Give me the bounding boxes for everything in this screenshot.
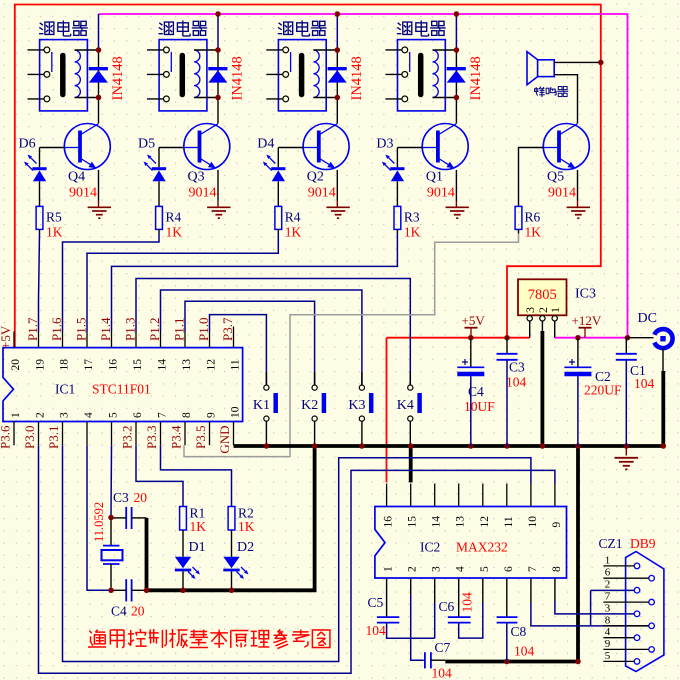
svg-text:9: 9 bbox=[605, 638, 611, 650]
svg-text:5: 5 bbox=[605, 650, 611, 662]
svg-text:K1: K1 bbox=[253, 398, 270, 413]
svg-text:P1.4: P1.4 bbox=[98, 317, 113, 341]
svg-text:P1.1: P1.1 bbox=[172, 318, 187, 341]
svg-text:9: 9 bbox=[551, 522, 563, 528]
svg-text:P3.5: P3.5 bbox=[193, 426, 208, 449]
svg-text:P1.2: P1.2 bbox=[147, 318, 162, 341]
svg-text:11: 11 bbox=[230, 359, 242, 370]
svg-text:K2: K2 bbox=[301, 398, 318, 413]
svg-text:IN4148: IN4148 bbox=[468, 56, 484, 100]
svg-text:8: 8 bbox=[551, 566, 563, 572]
svg-text:10: 10 bbox=[230, 406, 242, 418]
svg-text:13: 13 bbox=[181, 359, 193, 371]
svg-text:4: 4 bbox=[605, 626, 611, 638]
svg-text:P3.2: P3.2 bbox=[120, 426, 135, 449]
svg-text:7: 7 bbox=[157, 412, 169, 418]
svg-text:20: 20 bbox=[131, 604, 145, 619]
svg-text:104: 104 bbox=[634, 376, 655, 391]
svg-text:D1: D1 bbox=[189, 540, 206, 555]
svg-text:104: 104 bbox=[432, 666, 453, 680]
svg-text:P1.0: P1.0 bbox=[196, 318, 211, 341]
svg-text:8: 8 bbox=[181, 412, 193, 418]
svg-text:6: 6 bbox=[132, 412, 144, 418]
svg-text:D4: D4 bbox=[257, 137, 274, 152]
svg-text:7805: 7805 bbox=[528, 287, 557, 303]
svg-text:+5V: +5V bbox=[462, 313, 486, 328]
svg-text:9014: 9014 bbox=[189, 186, 217, 201]
svg-text:C4: C4 bbox=[468, 384, 484, 399]
svg-text:7: 7 bbox=[527, 566, 539, 572]
svg-text:5: 5 bbox=[479, 566, 491, 572]
svg-text:Q1: Q1 bbox=[426, 170, 443, 185]
svg-text:6: 6 bbox=[605, 567, 611, 579]
svg-text:C4: C4 bbox=[111, 604, 127, 619]
svg-text:D3: D3 bbox=[376, 137, 393, 152]
svg-text:8: 8 bbox=[605, 614, 611, 626]
svg-text:P3.0: P3.0 bbox=[22, 426, 37, 449]
svg-text:P1.6: P1.6 bbox=[49, 317, 64, 341]
svg-text:9014: 9014 bbox=[427, 186, 455, 201]
svg-text:P3.1: P3.1 bbox=[46, 426, 61, 449]
svg-text:1K: 1K bbox=[404, 225, 421, 240]
svg-text:P1.5: P1.5 bbox=[74, 318, 89, 341]
svg-text:18: 18 bbox=[59, 359, 71, 371]
svg-text:C6: C6 bbox=[439, 599, 455, 614]
svg-text:2: 2 bbox=[407, 566, 419, 572]
svg-text:+5V: +5V bbox=[0, 325, 13, 349]
svg-text:9: 9 bbox=[206, 412, 218, 418]
svg-text:104: 104 bbox=[460, 592, 475, 613]
svg-text:11: 11 bbox=[503, 516, 515, 527]
svg-text:1K: 1K bbox=[46, 225, 63, 240]
svg-text:9014: 9014 bbox=[69, 186, 97, 201]
svg-text:20: 20 bbox=[134, 490, 148, 505]
svg-text:K4: K4 bbox=[397, 398, 414, 413]
svg-text:P3.7: P3.7 bbox=[220, 317, 235, 341]
svg-text:P1.7: P1.7 bbox=[25, 317, 40, 341]
svg-text:C8: C8 bbox=[511, 624, 527, 639]
svg-text:1K: 1K bbox=[525, 225, 542, 240]
svg-text:3: 3 bbox=[605, 602, 611, 614]
svg-text:104: 104 bbox=[506, 375, 527, 390]
svg-text:IN4148: IN4148 bbox=[349, 56, 365, 100]
svg-text:1: 1 bbox=[383, 566, 395, 572]
svg-text:13: 13 bbox=[455, 516, 467, 528]
svg-text:DC: DC bbox=[638, 311, 657, 326]
svg-text:1K: 1K bbox=[166, 225, 183, 240]
svg-text:C3: C3 bbox=[113, 490, 129, 505]
svg-text:14: 14 bbox=[157, 359, 169, 371]
svg-text:R5: R5 bbox=[46, 210, 62, 225]
svg-text:15: 15 bbox=[407, 516, 419, 528]
svg-text:2: 2 bbox=[35, 412, 47, 418]
svg-text:1K: 1K bbox=[190, 519, 207, 534]
svg-text:+12V: +12V bbox=[572, 313, 602, 328]
svg-text:R4: R4 bbox=[166, 210, 182, 225]
svg-text:14: 14 bbox=[431, 516, 443, 528]
svg-text:R3: R3 bbox=[404, 210, 420, 225]
svg-text:1: 1 bbox=[10, 412, 22, 418]
svg-text:7: 7 bbox=[605, 591, 611, 603]
svg-text:220UF: 220UF bbox=[584, 383, 622, 398]
svg-text:DB9: DB9 bbox=[630, 536, 656, 551]
svg-text:P3.3: P3.3 bbox=[144, 426, 159, 449]
svg-text:Q5: Q5 bbox=[547, 170, 564, 185]
svg-text:3: 3 bbox=[431, 566, 443, 572]
svg-text:11.0592: 11.0592 bbox=[92, 502, 106, 542]
svg-text:C3: C3 bbox=[509, 360, 525, 375]
svg-text:C5: C5 bbox=[368, 595, 384, 610]
svg-text:K3: K3 bbox=[348, 398, 365, 413]
svg-text:9014: 9014 bbox=[548, 186, 576, 201]
svg-text:1: 1 bbox=[548, 307, 562, 313]
svg-text:MAX232: MAX232 bbox=[456, 540, 508, 555]
svg-text:10UF: 10UF bbox=[464, 399, 495, 414]
svg-text:IN4148: IN4148 bbox=[110, 56, 126, 100]
svg-text:1: 1 bbox=[605, 554, 611, 566]
svg-text:Q2: Q2 bbox=[307, 170, 324, 185]
svg-text:D6: D6 bbox=[19, 137, 36, 152]
svg-text:104: 104 bbox=[366, 623, 387, 638]
svg-text:9014: 9014 bbox=[308, 186, 336, 201]
svg-text:2: 2 bbox=[605, 579, 611, 591]
svg-text:STC11F01: STC11F01 bbox=[92, 382, 151, 397]
svg-text:Q4: Q4 bbox=[68, 170, 85, 185]
svg-text:D5: D5 bbox=[138, 137, 155, 152]
svg-text:16: 16 bbox=[108, 359, 120, 371]
svg-text:19: 19 bbox=[35, 359, 47, 371]
svg-text:16: 16 bbox=[383, 516, 395, 528]
svg-text:P1.3: P1.3 bbox=[123, 318, 138, 341]
svg-text:P3.6: P3.6 bbox=[0, 425, 13, 449]
svg-text:4: 4 bbox=[455, 566, 467, 572]
svg-text:IC2: IC2 bbox=[420, 540, 440, 555]
svg-text:12: 12 bbox=[479, 516, 491, 528]
svg-text:IC3: IC3 bbox=[575, 287, 596, 302]
svg-text:D2: D2 bbox=[237, 540, 254, 555]
svg-text:104: 104 bbox=[514, 644, 535, 659]
svg-text:IC1: IC1 bbox=[55, 382, 75, 397]
svg-text:15: 15 bbox=[132, 359, 144, 371]
svg-text:6: 6 bbox=[503, 566, 515, 572]
svg-text:1K: 1K bbox=[285, 225, 302, 240]
svg-text:IN4148: IN4148 bbox=[230, 56, 246, 100]
svg-text:5: 5 bbox=[108, 412, 120, 418]
svg-text:10: 10 bbox=[527, 516, 539, 528]
svg-text:17: 17 bbox=[83, 359, 95, 371]
svg-text:P3.4: P3.4 bbox=[169, 425, 184, 449]
svg-text:R6: R6 bbox=[525, 210, 541, 225]
svg-text:3: 3 bbox=[59, 412, 71, 418]
svg-text:GND: GND bbox=[217, 426, 232, 454]
svg-text:R4: R4 bbox=[285, 210, 301, 225]
svg-text:CZ1: CZ1 bbox=[599, 536, 623, 551]
svg-text:4: 4 bbox=[83, 412, 95, 418]
svg-text:1K: 1K bbox=[238, 519, 255, 534]
svg-text:20: 20 bbox=[10, 359, 22, 371]
svg-text:C7: C7 bbox=[435, 640, 451, 655]
svg-text:12: 12 bbox=[206, 359, 218, 371]
svg-text:Q3: Q3 bbox=[188, 170, 205, 185]
